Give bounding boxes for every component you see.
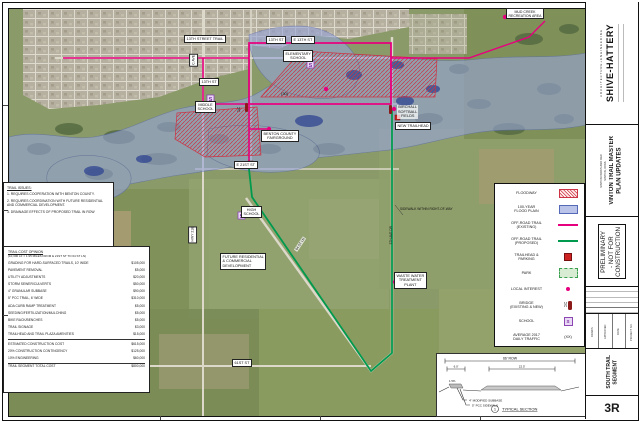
label-61st-st: 61ST ST	[232, 359, 252, 367]
legend-item-trail-existing: OFF-ROAD TRAIL (EXISTING)	[498, 218, 581, 233]
legend-item-school: SCHOOL S	[498, 314, 581, 329]
label-softball-fields: BIRCHALL SOFTBALL FIELDS	[397, 105, 418, 119]
label-c-ave: C AVE	[189, 54, 198, 67]
traffic-symbol: (XX)	[564, 335, 572, 339]
trailhead-swatch	[564, 253, 572, 261]
label-e-13th-st: E 13TH ST	[291, 36, 315, 44]
segment-section: SOUTH TRAIL SEGMENT	[586, 349, 638, 396]
plan-sheet: )( S S S	[0, 0, 640, 422]
label-13th-st-n: 13TH ST	[266, 36, 286, 44]
legend-item-floodway: FLOODWAY	[498, 186, 581, 201]
school-swatch: S	[564, 317, 573, 326]
cost-subtitle: (10,300 LF = 1.95 MILES FROM E 21ST ST T…	[8, 254, 145, 258]
section-bubble: 1	[494, 408, 496, 412]
legend-item-local-interest: LOCAL INTEREST	[498, 282, 581, 297]
floodplain-swatch	[559, 205, 578, 214]
meta-date: DATE	[613, 314, 626, 348]
trail-issue-3: 3. DRAINAGE EFFECTS OF PROPOSED TRAIL IN…	[7, 210, 110, 214]
cost-row: TRAIL SIGNAGE$3,000	[8, 325, 145, 332]
firm-logo: SHIVE-HATTERY	[605, 24, 615, 102]
margin-tick	[3, 105, 8, 106]
typical-section-panel: 66' ROW 6.0' 22.5' 1.5% 4" MODIFIED SUBB…	[436, 353, 587, 417]
bridge-new-swatch	[568, 301, 572, 310]
sheet-number: 3R	[604, 401, 619, 415]
cost-summary-row: 10% ENGINEERING$60,000	[8, 356, 145, 364]
label-5th-ave-dr: 5TH AVE DR	[390, 226, 394, 244]
margin-tick	[480, 416, 481, 420]
label-13th-street-trail: 13TH STREET TRAIL	[184, 35, 226, 43]
project-section: VINTON PARKS AND RECVINTON, IOWA VINTON …	[586, 125, 638, 217]
label-hwy-218: HWY 218	[188, 226, 197, 243]
row-dimension: 66' ROW	[503, 357, 518, 361]
cost-row: PAVEMENT REMOVAL$5,000	[8, 268, 145, 275]
meta-project-no: PROJECT NO.	[626, 314, 638, 348]
label-e-21st-st: E 21ST ST	[234, 161, 258, 169]
trail-issues-panel: TRAIL ISSUES: 1. REQUIRES COOPERATION WI…	[3, 182, 114, 254]
cost-row: 4" GRANULAR SUBBASE$90,000	[8, 289, 145, 296]
legend-item-traffic: AVERAGE 2017 DAILY TRAFFIC (XX)	[498, 330, 581, 345]
label-future-development: FUTURE RESIDENTIAL & COMMERCIAL DEVELOPM…	[220, 253, 266, 270]
cost-row: STORM SEWER/CULVERTS$50,000	[8, 282, 145, 289]
label-13th-st-w: 13TH ST	[199, 78, 219, 86]
preliminary-stamp: PRELIMINARY - NOT FOR CONSTRUCTION	[598, 224, 626, 280]
legend-item-floodplain: 100-YEAR FLOOD PLAIN	[498, 202, 581, 217]
margin-tick	[3, 315, 8, 316]
margin-tick	[160, 416, 161, 420]
local-interest-swatch	[566, 287, 571, 292]
project-client-location: VINTON PARKS AND RECVINTON, IOWA	[600, 154, 608, 188]
segment-name: SOUTH TRAIL SEGMENT	[606, 355, 619, 389]
proposed-trail-swatch	[558, 240, 578, 242]
trail-cost-panel: TRAIL COST OPINION (10,300 LF = 1.95 MIL…	[3, 246, 150, 393]
firm-address-rule	[623, 24, 624, 102]
stamp-section: PRELIMINARY - NOT FOR CONSTRUCTION	[586, 217, 638, 287]
walk-dimension: 6.0'	[454, 365, 459, 369]
meta-approved: APPROVED	[599, 314, 612, 348]
firm-address-rule	[618, 24, 619, 102]
cost-row: GRADING FOR HARD-SURFACED TRAILS, 10' WI…	[8, 261, 145, 268]
cost-total-row: TRAIL SEGMENT TOTAL COST$800,000	[8, 364, 145, 371]
traffic-count-note: (30)	[281, 91, 289, 96]
cost-row: UTILITY ADJUSTMENTS$20,000	[8, 275, 145, 282]
bridge-existing-glyph: )(	[564, 302, 567, 308]
label-mud-creek: MUD CREEK RECREATION AREA	[506, 8, 544, 19]
cost-row: 5" PCC TRAIL, 6' WIDE$310,000	[8, 296, 145, 303]
sheet-number-section: 3R	[586, 396, 638, 419]
cost-summary-row: 20% CONSTRUCTION CONTINGENCY$125,000	[8, 349, 145, 356]
firm-tagline: ARCHITECTURE+ENGINEERING	[600, 29, 603, 97]
trail-issues-title: TRAIL ISSUES:	[7, 186, 110, 190]
margin-tick	[3, 210, 8, 211]
legend-item-park: PARK	[498, 266, 581, 281]
revision-rows	[586, 287, 638, 313]
firm-section: ARCHITECTURE+ENGINEERING SHIVE-HATTERY	[586, 2, 638, 125]
label-sidewalk-row: SIDEWALK WITHIN RIGHT-OF-WAY	[400, 208, 453, 212]
meta-section: DRAWN APPROVED DATE PROJECT NO.	[586, 314, 638, 349]
trail-issue-1: 1. REQUIRES COOPERATION WITH BENTON COUN…	[7, 192, 110, 196]
trail-issue-2: 2. REQUIRES COORDINATION WITH FUTURE RES…	[7, 199, 110, 208]
title-block: ARCHITECTURE+ENGINEERING SHIVE-HATTERY V…	[585, 2, 638, 419]
cost-row: BIKE RACK/BENCHES$5,000	[8, 318, 145, 325]
label-wwtp: WASTE WATER TREATMENT PLANT	[394, 272, 427, 289]
section-title: TYPICAL SECTION	[502, 407, 538, 412]
margin-tick	[320, 416, 321, 420]
cost-row: SEEDING/FERTILIZATION/MULCHING$5,000	[8, 311, 145, 318]
park-swatch	[559, 268, 578, 278]
cost-summary-row: ESTIMATED CONSTRUCTION COST$615,000	[8, 342, 145, 349]
typical-section-drawing: 66' ROW 6.0' 22.5' 1.5% 4" MODIFIED SUBB…	[437, 354, 586, 416]
slope-note: 1.5%	[449, 379, 456, 383]
project-title: VINTON TRAIL MASTER PLAN UPDATES	[609, 136, 624, 205]
map-legend: FLOODWAY 100-YEAR FLOOD PLAIN OFF-ROAD T…	[494, 183, 585, 347]
existing-trail-swatch	[558, 224, 578, 226]
label-fairground: BENTON COUNTY FAIRGROUND	[261, 130, 299, 142]
subbase-note: 4" MODIFIED SUBBASE	[469, 399, 502, 403]
label-high-school: HIGH SCHOOL	[241, 206, 262, 218]
bridge-symbol-glyph: )(	[237, 107, 241, 113]
label-middle-school: MIDDLE SCHOOL	[195, 101, 216, 113]
floodway-swatch	[559, 189, 578, 198]
legend-item-trailhead: TRAILHEAD & PARKING	[498, 250, 581, 265]
meta-drawn: DRAWN	[586, 314, 599, 348]
school-icon: S	[309, 63, 313, 69]
cost-row: TRAILHEAD AND TRAIL PLAZA AMENITIES$15,0…	[8, 332, 145, 340]
pavement-dimension: 22.5'	[519, 365, 526, 369]
cost-row: ADA CURB RAMP TREATMENT$5,000	[8, 304, 145, 311]
legend-item-bridge: BRIDGE (EXISTING & NEW) )(	[498, 298, 581, 313]
label-elementary-school: ELEMENTARY SCHOOL	[283, 50, 313, 62]
label-new-trailhead: NEW TRAILHEAD	[395, 122, 431, 130]
revision-section	[586, 287, 638, 314]
legend-item-trail-proposed: OFF-ROAD TRAIL (PROPOSED)	[498, 234, 581, 249]
